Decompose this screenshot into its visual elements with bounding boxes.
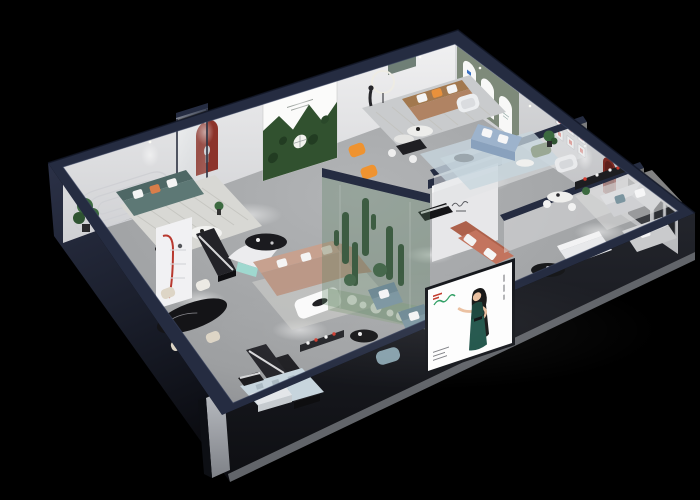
plant-small	[582, 187, 590, 195]
showroom-render	[0, 0, 700, 500]
round-side-table	[516, 159, 534, 167]
ground-glow	[200, 270, 660, 390]
isometric-scene	[0, 0, 700, 500]
